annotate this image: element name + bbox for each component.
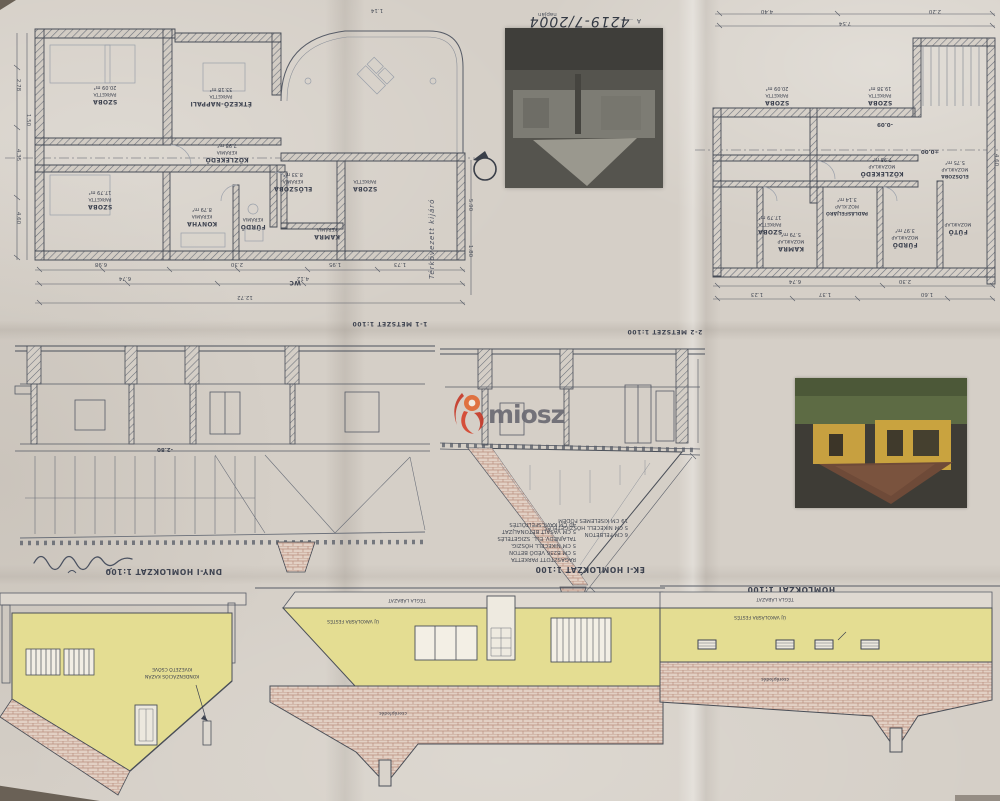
svg-text:5.79 m²: 5.79 m² — [781, 231, 801, 237]
svg-text:2.78: 2.78 — [15, 79, 21, 92]
room-label-szoba1: SZOBA PARKETTA 20.09 m² — [93, 84, 118, 105]
svg-text:KAMRA: KAMRA — [314, 233, 340, 240]
svg-text:1.73: 1.73 — [393, 261, 406, 267]
svg-text:6.98: 6.98 — [94, 261, 107, 267]
plinth-band — [660, 592, 992, 608]
svg-text:MOZ.KLAP: MOZ.KLAP — [835, 203, 859, 209]
stamp-napjan: napján — [538, 11, 557, 17]
miosz-watermark: miosz — [450, 383, 568, 445]
svg-text:KONYHA: KONYHA — [187, 220, 217, 227]
roof-brick — [270, 686, 663, 784]
room-label-konyha: KONYHA KERÁMIA 8.79 m² — [187, 206, 217, 227]
svg-text:4.60: 4.60 — [15, 212, 21, 225]
svg-text:SZOBA: SZOBA — [88, 203, 113, 210]
svg-text:KAMRA: KAMRA — [778, 245, 804, 252]
svg-text:33.18 m²: 33.18 m² — [210, 86, 233, 92]
svg-text:-0.09: -0.09 — [877, 121, 893, 127]
room-label-szoba-tr: SZOBA PARKETTA 19.38 m² — [868, 85, 893, 106]
svg-text:2.20: 2.20 — [928, 8, 941, 14]
miosz-logo-icon — [450, 391, 488, 437]
plinth-band — [283, 592, 663, 608]
svg-text:MOZAIKLAP: MOZAIKLAP — [868, 163, 895, 169]
eaves-teeth — [20, 542, 425, 543]
svg-text:SZOBA: SZOBA — [758, 228, 783, 235]
title-metszet1: 1-1 METSZET 1:100 — [352, 320, 427, 327]
ground-band — [0, 593, 246, 605]
terrace-outline — [281, 31, 463, 153]
handwriting-terkovezett: Térkövezett kijáró — [428, 183, 444, 279]
handwriting-signature — [28, 545, 148, 577]
svg-text:8.79 m²: 8.79 m² — [192, 206, 212, 212]
svg-text:MOZAIKLAP: MOZAIKLAP — [777, 238, 804, 244]
roof-label: cserépfedés — [760, 676, 788, 683]
room-label-padlas: PADLÁSFELJÁRÓ MOZ.KLAP 3.14 m² — [826, 196, 868, 217]
svg-text:4.35: 4.35 — [15, 149, 21, 162]
room-label-szoba2: SZOBA PARKETTA 17.79 m² — [88, 189, 113, 210]
elevation-dny: KONDENZÁCIÓS KAZÁN KIVEZETŐ CSŐVE — [0, 585, 250, 801]
svg-text:SZOBA: SZOBA — [353, 185, 378, 192]
room-label-wc: WC — [289, 279, 301, 286]
svg-text:KERÁMIA: KERÁMIA — [282, 178, 303, 185]
bw-photo-content — [505, 28, 663, 188]
room-label-futo: FŰTŐ MOZAIKLAP — [944, 221, 971, 235]
stamp-file-number: 4219-7/2004 — [483, 13, 675, 29]
svg-text:7.98 m²: 7.98 m² — [217, 142, 237, 148]
elevation-dk: TÉGLA LÁBAZAT ÚJ VAKOLÁSRA FESTÉS cserép… — [660, 580, 1000, 760]
blueprint-sheet: 6.98 2.30 6.74 1.95 1.73 12.72 2.78 4.35… — [0, 0, 1000, 801]
svg-text:20.09 m²: 20.09 m² — [766, 85, 789, 91]
svg-text:SZOBA: SZOBA — [93, 98, 118, 105]
room-label-eloszoba: ELŐSZOBA KERÁMIA 8.33 m² — [274, 171, 312, 192]
piers — [27, 346, 299, 444]
svg-text:PARKETTA: PARKETTA — [353, 178, 377, 184]
note-line: 40 CM KAVICSFELTÖLTÉS — [452, 520, 576, 527]
svg-text:6.74: 6.74 — [118, 275, 131, 281]
elevation-ek: TÉGLA LÁBAZAT ÚJ VAKOLÁSRA FESTÉS cserép… — [255, 578, 665, 800]
ground-lines — [15, 346, 435, 351]
well-symbol-icon — [470, 152, 502, 186]
svg-text:1.37: 1.37 — [818, 291, 831, 297]
watermark-text: miosz — [488, 400, 564, 429]
svg-text:PARKETTA: PARKETTA — [88, 196, 112, 202]
level-labels: -0.09 ±0.00 — [877, 121, 939, 154]
svg-text:1.50: 1.50 — [25, 114, 31, 127]
svg-text:2.30: 2.30 — [230, 261, 243, 267]
room-label-furdo: FÜRDŐ MOZAIKLAP 3.97 m² — [891, 227, 918, 248]
leader-arrow — [201, 715, 208, 721]
boiler-flue-pipe — [203, 721, 211, 745]
title-ek-homlokzat: ÉK-I HOMLOKZAT 1:100 — [535, 565, 645, 574]
room-label-etkezo: ÉTKEZŐ-NAPPALI PARKETTA 33.18 m² — [190, 86, 252, 108]
room-label-furdo: FÜRDŐ KERÁMIA — [240, 216, 265, 230]
stairs — [923, 46, 979, 106]
svg-text:7.98 m²: 7.98 m² — [872, 156, 892, 162]
window-grid — [551, 618, 611, 662]
svg-text:MOZAIKLAP: MOZAIKLAP — [944, 221, 971, 227]
room-label-kamra: KAMRA KERÁMIA — [314, 226, 340, 240]
entry-door — [135, 705, 157, 745]
svg-text:PARKETTA: PARKETTA — [758, 221, 782, 227]
svg-text:PARKETTA: PARKETTA — [209, 93, 233, 99]
floor-plan-left: 6.98 2.30 6.74 1.95 1.73 12.72 2.78 4.35… — [5, 5, 475, 325]
room-label-szoba-bl: SZOBA PARKETTA 17.79 m² — [758, 214, 783, 235]
svg-text:1.80: 1.80 — [467, 245, 473, 258]
dimension-labels: 4.40 7.54 2.20 4.60 6.74 2.30 1.23 1.37 … — [750, 8, 999, 297]
roof-brick — [660, 662, 992, 750]
svg-text:FÜRDŐ: FÜRDŐ — [892, 241, 917, 248]
entry-door — [487, 596, 515, 660]
svg-text:SZOBA: SZOBA — [868, 99, 893, 106]
svg-text:20.09 m²: 20.09 m² — [94, 84, 117, 90]
svg-text:KÖZLEKEDŐ: KÖZLEKEDŐ — [205, 156, 248, 163]
svg-text:FŰTŐ: FŰTŐ — [948, 228, 967, 235]
svg-text:ELŐSZOBA: ELŐSZOBA — [274, 185, 312, 192]
corner-shadow-bottom-right — [955, 795, 1000, 801]
window-grid-1 — [26, 649, 60, 675]
window-grid-2 — [64, 649, 94, 675]
svg-text:12.72: 12.72 — [237, 294, 253, 300]
svg-text:SZOBA: SZOBA — [765, 99, 790, 106]
note-line: TALAJNEDV. ELL. SZIGETELÉS — [452, 534, 576, 541]
svg-text:17.79 m²: 17.79 m² — [759, 214, 782, 220]
svg-text:6.74: 6.74 — [788, 278, 801, 284]
svg-text:PARKETTA: PARKETTA — [868, 92, 892, 98]
section2-notes: RAGASZTOTT PARKETTA 5 CM B236 VÉDŐ BETON… — [452, 516, 576, 562]
svg-text:19.38 m²: 19.38 m² — [869, 85, 892, 91]
note-line: RAGASZTOTT PARKETTA — [452, 555, 576, 562]
svg-text:1.14: 1.14 — [370, 7, 383, 13]
roof-label: cserépfedés — [378, 710, 406, 717]
svg-text:KIVEZETŐ CSŐVE: KIVEZETŐ CSŐVE — [152, 666, 192, 673]
stamp-a-mark: A ……… — [612, 17, 641, 24]
svg-text:4.60: 4.60 — [993, 154, 999, 167]
title-metszet2: 2-2 METSZET 1:100 — [627, 328, 702, 335]
svg-text:17.79 m²: 17.79 m² — [89, 189, 112, 195]
svg-text:3.97 m²: 3.97 m² — [895, 227, 915, 233]
note-line: 5 CM NIKECELL HŐSZIG. — [452, 541, 576, 548]
chimney — [379, 760, 391, 786]
svg-text:KONDENZÁCIÓS KAZÁN: KONDENZÁCIÓS KAZÁN — [145, 673, 199, 680]
svg-text:FÜRDŐ: FÜRDŐ — [240, 223, 265, 230]
roof-structure — [20, 455, 425, 538]
note-line: 5 CM VASALT BETONALJZAT — [452, 527, 576, 534]
svg-text:ELŐSZOBA: ELŐSZOBA — [941, 173, 969, 180]
level-label: -2.80 — [157, 446, 173, 452]
svg-text:±0.00: ±0.00 — [921, 148, 939, 154]
svg-text:1.23: 1.23 — [750, 291, 763, 297]
section-1: -2.80 — [15, 330, 435, 575]
facade-yellow — [12, 613, 232, 771]
svg-text:4.40: 4.40 — [760, 8, 773, 14]
chimney-hatched — [277, 542, 315, 572]
svg-text:KERÁMIA: KERÁMIA — [242, 216, 263, 223]
room-band — [15, 384, 430, 451]
room-label-eloszoba: ELŐSZOBA MOZAIKLAP 5.75 m² — [941, 159, 969, 180]
color-photo — [795, 378, 967, 508]
svg-text:ÉTKEZŐ-NAPPALI: ÉTKEZŐ-NAPPALI — [190, 100, 252, 108]
svg-text:PARKETTA: PARKETTA — [765, 92, 789, 98]
svg-text:KERÁMIA: KERÁMIA — [191, 213, 212, 220]
svg-text:1.60: 1.60 — [920, 291, 933, 297]
note-line: 5 CM B236 VÉDŐ BETON — [452, 548, 576, 555]
svg-text:2.30: 2.30 — [898, 278, 911, 284]
color-photo-content — [795, 378, 967, 508]
terrace-inner-line — [287, 37, 457, 153]
svg-text:1.95: 1.95 — [328, 261, 341, 267]
svg-text:MOZAIKLAP: MOZAIKLAP — [941, 166, 968, 172]
facade-yellow — [660, 608, 992, 662]
window-3pane — [415, 626, 477, 660]
bw-photo — [505, 28, 663, 188]
svg-text:PADLÁSFELJÁRÓ: PADLÁSFELJÁRÓ — [826, 210, 868, 217]
svg-text:PARKETTA: PARKETTA — [93, 91, 117, 97]
svg-text:KERÁMIA: KERÁMIA — [216, 149, 237, 156]
svg-text:KERÁMIA: KERÁMIA — [316, 226, 337, 233]
room-label-szoba3: SZOBA PARKETTA — [353, 178, 378, 192]
svg-text:5.90: 5.90 — [467, 199, 473, 212]
room-label-kamra: KAMRA MOZAIKLAP 5.79 m² — [777, 231, 804, 252]
svg-text:3.14 m²: 3.14 m² — [837, 196, 857, 202]
room-label-szoba-tl: SZOBA PARKETTA 20.09 m² — [765, 85, 790, 106]
svg-text:5.75 m²: 5.75 m² — [945, 159, 965, 165]
floor-plan-right: 4.40 7.54 2.20 4.60 6.74 2.30 1.23 1.37 … — [695, 0, 1000, 310]
chimney — [890, 728, 902, 752]
svg-text:MOZAIKLAP: MOZAIKLAP — [891, 234, 918, 240]
svg-text:8.33 m²: 8.33 m² — [283, 171, 303, 177]
svg-text:7.54: 7.54 — [838, 20, 851, 26]
svg-text:KÖZLEKEDŐ: KÖZLEKEDŐ — [860, 170, 903, 177]
